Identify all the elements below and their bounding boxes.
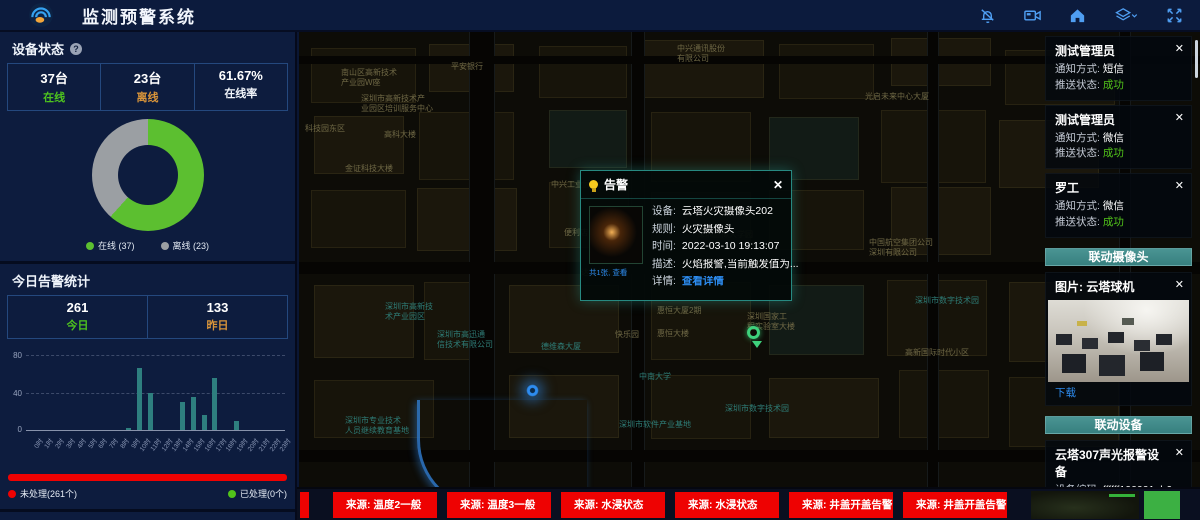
view-detail-link[interactable]: 查看详情: [682, 276, 724, 287]
map-label: 高科大楼: [384, 130, 416, 140]
stat-online: 37台 在线: [8, 64, 100, 110]
bar-slot: [145, 355, 156, 430]
ytick-0: 0: [8, 425, 22, 434]
map-label: 中南大学: [639, 372, 671, 382]
today-alarm-bars: [26, 355, 285, 430]
close-icon[interactable]: ✕: [1175, 278, 1184, 291]
device-location-dot[interactable]: [526, 384, 539, 397]
field-value: 短信: [1103, 63, 1124, 75]
bar-14时: [180, 402, 185, 430]
card-title: 云塔307声光报警设备: [1055, 446, 1182, 480]
close-icon[interactable]: ✕: [1175, 111, 1184, 124]
map-label: 深圳市高新技 术产业园区: [385, 302, 433, 322]
field-value: 微信: [1103, 200, 1124, 212]
card-title: 测试管理员: [1055, 42, 1182, 59]
alarm-popup-title: 告警: [604, 176, 628, 193]
legend-label: 已处理(0个): [240, 487, 287, 500]
xlabel-slot: 5时: [80, 434, 91, 460]
legend-label: 在线 (37): [98, 239, 135, 252]
alert-chip[interactable]: 来源: 井盖开盖告警: [789, 492, 893, 518]
alarm-popup: 告警 ✕ 共1张, 查看 设备: 云塔火灾摄像头202 规则: 火灾摄像头: [580, 170, 792, 301]
xlabel-slot: 16时: [199, 434, 210, 460]
bar-slot: [177, 355, 188, 430]
stat-offline: 23台 离线: [100, 64, 193, 110]
bar-9时: [126, 428, 131, 430]
map-building: [311, 190, 406, 248]
alarm-field-detail: 详情: 查看详情: [652, 276, 799, 287]
top-header: 监测预警系统: [0, 0, 1200, 32]
page-title: 监测预警系统: [82, 3, 196, 28]
device-donut-wrap: [0, 119, 295, 231]
stat-value: 23台: [101, 68, 193, 87]
snapshot-view-link[interactable]: 共1张, 查看: [589, 267, 643, 278]
highlighted-road: [417, 400, 587, 487]
progress-legend: 未处理(261个) 已处理(0个): [0, 487, 295, 500]
xlabel-slot: 12时: [156, 434, 167, 460]
camera-snapshot-image[interactable]: [1048, 300, 1189, 382]
stat-value: 261: [8, 300, 147, 315]
notification-list: 测试管理员✕通知方式: 短信推送状态: 成功测试管理员✕通知方式: 微信推送状态…: [1045, 36, 1192, 242]
ytick-80: 80: [8, 351, 22, 360]
ytick-40: 40: [8, 389, 22, 398]
bar-slot: [37, 355, 48, 430]
map-label: 深圳市高新技术产 业园区培训服务中心: [361, 94, 433, 114]
xlabel-slot: 2时: [48, 434, 59, 460]
camera-card-title: 图片: 云塔球机: [1046, 273, 1191, 297]
alert-chip[interactable]: 来源: 温度2一般: [333, 492, 437, 518]
map-label: 快乐园: [615, 330, 639, 340]
donut-legend: 在线 (37) 离线 (23): [0, 239, 295, 252]
alarm-popup-titlebar: 告警 ✕: [581, 171, 791, 199]
map-label: 德维森大厦: [541, 342, 581, 352]
stat-label: 离线: [101, 89, 193, 105]
bar-slot: [91, 355, 102, 430]
linked-cameras-header: 联动摄像头: [1045, 248, 1192, 266]
xlabel-slot: 8时: [112, 434, 123, 460]
bar-slot: [188, 355, 199, 430]
xlabel-slot: 6时: [91, 434, 102, 460]
close-icon[interactable]: ✕: [1175, 446, 1184, 459]
stat-yesterday: 133 昨日: [147, 296, 287, 338]
close-icon[interactable]: ✕: [1175, 42, 1184, 55]
map-label: 平安银行: [451, 62, 483, 72]
map-label: 深圳市数字技术园: [725, 404, 789, 414]
card-field: 推送状态: 成功: [1055, 146, 1182, 162]
legend-unhandled: 未处理(261个): [8, 487, 77, 500]
bar-slot: [80, 355, 91, 430]
map-label: 深圳市软件产业基地: [619, 420, 691, 430]
stat-value: 61.67%: [195, 68, 287, 83]
xlabel-slot: 22时: [264, 434, 275, 460]
map-label: 光启未来中心大厦: [865, 92, 929, 102]
field-label: 设备:: [652, 206, 676, 217]
notification-card: 测试管理员✕通知方式: 短信推送状态: 成功: [1045, 36, 1192, 101]
alert-chip[interactable]: 来源: 井盖开盖告警: [903, 492, 1007, 518]
stat-value: 37台: [8, 68, 100, 87]
scrollbar-thumb[interactable]: [1195, 40, 1198, 78]
map-label: 中国航空集团公司 深圳有限公司: [869, 238, 933, 258]
device-status-stats: 37台 在线 23台 离线 61.67% 在线率: [7, 63, 288, 111]
alert-chip[interactable]: 来源: 水浸状态: [675, 492, 779, 518]
map-building: [899, 370, 989, 438]
map-pin-icon[interactable]: [747, 326, 760, 339]
help-icon[interactable]: ?: [70, 43, 82, 55]
bar-slot: [199, 355, 210, 430]
right-sidebar: 测试管理员✕通知方式: 短信推送状态: 成功测试管理员✕通知方式: 微信推送状态…: [1045, 36, 1192, 520]
bar-slot: [156, 355, 167, 430]
bar-slot: [134, 355, 145, 430]
xlabel-slot: 14时: [177, 434, 188, 460]
camera-thumb-green[interactable]: [1144, 491, 1180, 519]
stat-value: 133: [148, 300, 287, 315]
alert-chip-row: 来源: 温度2一般来源: 温度3一般来源: 水浸状态来源: 水浸状态来源: 井盖…: [309, 492, 1007, 518]
xlabel-slot: 0时: [26, 434, 37, 460]
legend-label: 离线 (23): [173, 239, 210, 252]
alarm-field-device: 设备: 云塔火灾摄像头202: [652, 206, 799, 217]
legend-handled: 已处理(0个): [228, 487, 287, 500]
card-title: 测试管理员: [1055, 111, 1182, 128]
legend-dot-red: [8, 490, 16, 498]
notification-card: 测试管理员✕通知方式: 微信推送状态: 成功: [1045, 105, 1192, 170]
alarm-snapshot-image[interactable]: [589, 206, 643, 264]
donut-hole: [118, 145, 178, 205]
map-label: 科技园东区: [305, 124, 345, 134]
legend-dot-gray: [161, 242, 169, 250]
left-sidebar: 设备状态 ? 37台 在线 23台 离线 61.67% 在线率: [0, 32, 297, 520]
xlabel-slot: 20时: [242, 434, 253, 460]
field-value: 成功: [1103, 147, 1124, 159]
download-link[interactable]: 下载: [1046, 382, 1191, 405]
map-label: 惠恒大楼: [657, 329, 689, 339]
field-label: 描述:: [652, 259, 676, 270]
bar-16时: [202, 415, 207, 430]
unhandled-progress-bar: [8, 474, 287, 481]
legend-dot-green: [86, 242, 94, 250]
app-logo-icon: [28, 2, 54, 28]
hourly-alarm-chart: 80 40 0: [26, 355, 285, 431]
map-label: 高新国际时代小区: [905, 348, 969, 358]
field-value: 云塔火灾摄像头202: [682, 206, 773, 217]
close-icon[interactable]: ✕: [773, 178, 783, 192]
bar-slot: [231, 355, 242, 430]
bar-slot: [102, 355, 113, 430]
alert-chip[interactable]: 来源: 水浸状态: [561, 492, 665, 518]
bar-slot: [253, 355, 264, 430]
xlabel-slot: 23时: [274, 434, 285, 460]
card-field: 推送状态: 成功: [1055, 215, 1182, 231]
today-alarm-xlabels: 0时1时2时3时4时5时6时7时8时9时10时11时12时13时14时15时16…: [26, 434, 285, 460]
bar-10时: [137, 368, 142, 430]
stat-label: 今日: [8, 317, 147, 333]
alarm-field-rule: 规则: 火灾摄像头: [652, 224, 799, 235]
field-value: 成功: [1103, 216, 1124, 228]
map-label: 南山区高新技术 产业园W座: [341, 68, 397, 88]
camera-thumb-dark[interactable]: [1031, 491, 1139, 519]
map-building: [779, 44, 874, 99]
section-title-text: 设备状态: [12, 39, 64, 58]
legend-online: 在线 (37): [86, 239, 135, 252]
xlabel-slot: 4时: [69, 434, 80, 460]
xlabel-slot: 17时: [210, 434, 221, 460]
xlabel-slot: 13时: [166, 434, 177, 460]
field-value: 微信: [1103, 132, 1124, 144]
card-field: 通知方式: 微信: [1055, 199, 1182, 215]
x-axis-label: 23时: [277, 436, 293, 453]
xlabel-slot: 21时: [253, 434, 264, 460]
xlabel-slot: 10时: [134, 434, 145, 460]
field-label: 详情:: [652, 276, 676, 287]
xlabel-slot: 11时: [145, 434, 156, 460]
legend-label: 未处理(261个): [20, 487, 77, 500]
xlabel-slot: 1时: [37, 434, 48, 460]
bar-slot: [264, 355, 275, 430]
bar-slot: [242, 355, 253, 430]
stat-label: 昨日: [148, 317, 287, 333]
bar-slot: [26, 355, 37, 430]
bar-slot: [220, 355, 231, 430]
header-icon-group: [978, 6, 1184, 25]
map-building: [417, 188, 517, 251]
stat-today: 261 今日: [8, 296, 147, 338]
field-value: 火灾摄像头: [682, 224, 735, 235]
bar-slot: [274, 355, 285, 430]
xlabel-slot: 7时: [102, 434, 113, 460]
card-field: 推送状态: 成功: [1055, 78, 1182, 94]
bar-19时: [234, 421, 239, 430]
close-icon[interactable]: ✕: [1175, 179, 1184, 192]
map-label: 惠恒大厦2期: [657, 306, 701, 316]
bar-slot: [123, 355, 134, 430]
field-label: 规则:: [652, 224, 676, 235]
card-title: 罗工: [1055, 179, 1182, 196]
alarm-popup-body: 共1张, 查看 设备: 云塔火灾摄像头202 规则: 火灾摄像头 时间: 202…: [581, 199, 791, 298]
alarm-snapshot-col: 共1张, 查看: [589, 206, 643, 294]
bar-slot: [166, 355, 177, 430]
map-label: 深圳市高迅通 信技术有限公司: [437, 330, 493, 350]
alarm-field-time: 时间: 2022-03-10 19:13:07: [652, 241, 799, 252]
alert-ticker-bar: 来源: 温度2一般来源: 温度3一般来源: 水浸状态来源: 水浸状态来源: 井盖…: [297, 487, 1200, 520]
layers-icon[interactable]: [1113, 6, 1139, 25]
today-stats-row: 261 今日 133 昨日: [7, 295, 288, 339]
camera-image-card: 图片: 云塔球机 ✕ 下载: [1045, 272, 1192, 406]
card-field: 通知方式: 短信: [1055, 62, 1182, 78]
field-value: 火焰报警,当前触发值为...: [682, 259, 799, 270]
alarm-field-description: 描述: 火焰报警,当前触发值为...: [652, 259, 799, 270]
bar-15时: [191, 397, 196, 430]
legend-offline: 离线 (23): [161, 239, 210, 252]
field-value: 2022-03-10 19:13:07: [682, 241, 780, 252]
bar-slot: [210, 355, 221, 430]
map-label: 深圳市数字技术园: [915, 296, 979, 306]
fullscreen-icon[interactable]: [1165, 6, 1184, 25]
bar-slot: [112, 355, 123, 430]
home-icon[interactable]: [1068, 6, 1087, 25]
field-value: 成功: [1103, 79, 1124, 91]
bar-slot: [69, 355, 80, 430]
stat-label: 在线: [8, 89, 100, 105]
video-camera-icon[interactable]: [1023, 6, 1042, 25]
map-building: [419, 112, 514, 180]
monitoring-dashboard: 监测预警系统: [0, 0, 1200, 520]
legend-dot-green: [228, 490, 236, 498]
alarm-bulb-icon: [589, 180, 598, 189]
alarm-fields: 设备: 云塔火灾摄像头202 规则: 火灾摄像头 时间: 2022-03-10 …: [652, 206, 799, 294]
alert-chip-partial: [300, 492, 309, 518]
notification-card: 罗工✕通知方式: 微信推送状态: 成功: [1045, 173, 1192, 238]
map-building: [539, 46, 627, 98]
xlabel-slot: 3时: [58, 434, 69, 460]
device-status-donut: [92, 119, 204, 231]
field-label: 时间:: [652, 241, 676, 252]
map-building: [549, 110, 627, 168]
xlabel-slot: 18时: [220, 434, 231, 460]
bar-17时: [212, 378, 217, 430]
section-title-text: 今日告警统计: [12, 271, 90, 290]
bar-slot: [58, 355, 69, 430]
linked-devices-header: 联动设备: [1045, 416, 1192, 434]
stat-online-rate: 61.67% 在线率: [194, 64, 287, 110]
device-status-title: 设备状态 ?: [0, 32, 295, 63]
today-stats-title: 今日告警统计: [0, 264, 295, 295]
xlabel-slot: 15时: [188, 434, 199, 460]
bell-muted-icon[interactable]: [978, 6, 997, 25]
xlabel-slot: 9时: [123, 434, 134, 460]
card-field: 通知方式: 微信: [1055, 131, 1182, 147]
stat-label: 在线率: [195, 85, 287, 101]
xlabel-slot: 19时: [231, 434, 242, 460]
alert-chip[interactable]: 来源: 温度3一般: [447, 492, 551, 518]
bar-slot: [48, 355, 59, 430]
bar-11时: [148, 393, 153, 431]
map-label: 金证科技大楼: [345, 164, 393, 174]
month-stats-title: 本月告警统计: [0, 512, 295, 520]
map-label: 深圳市专业技术 人员继续教育基地: [345, 416, 409, 436]
map-label: 中兴通讯股份 有限公司: [677, 44, 725, 64]
